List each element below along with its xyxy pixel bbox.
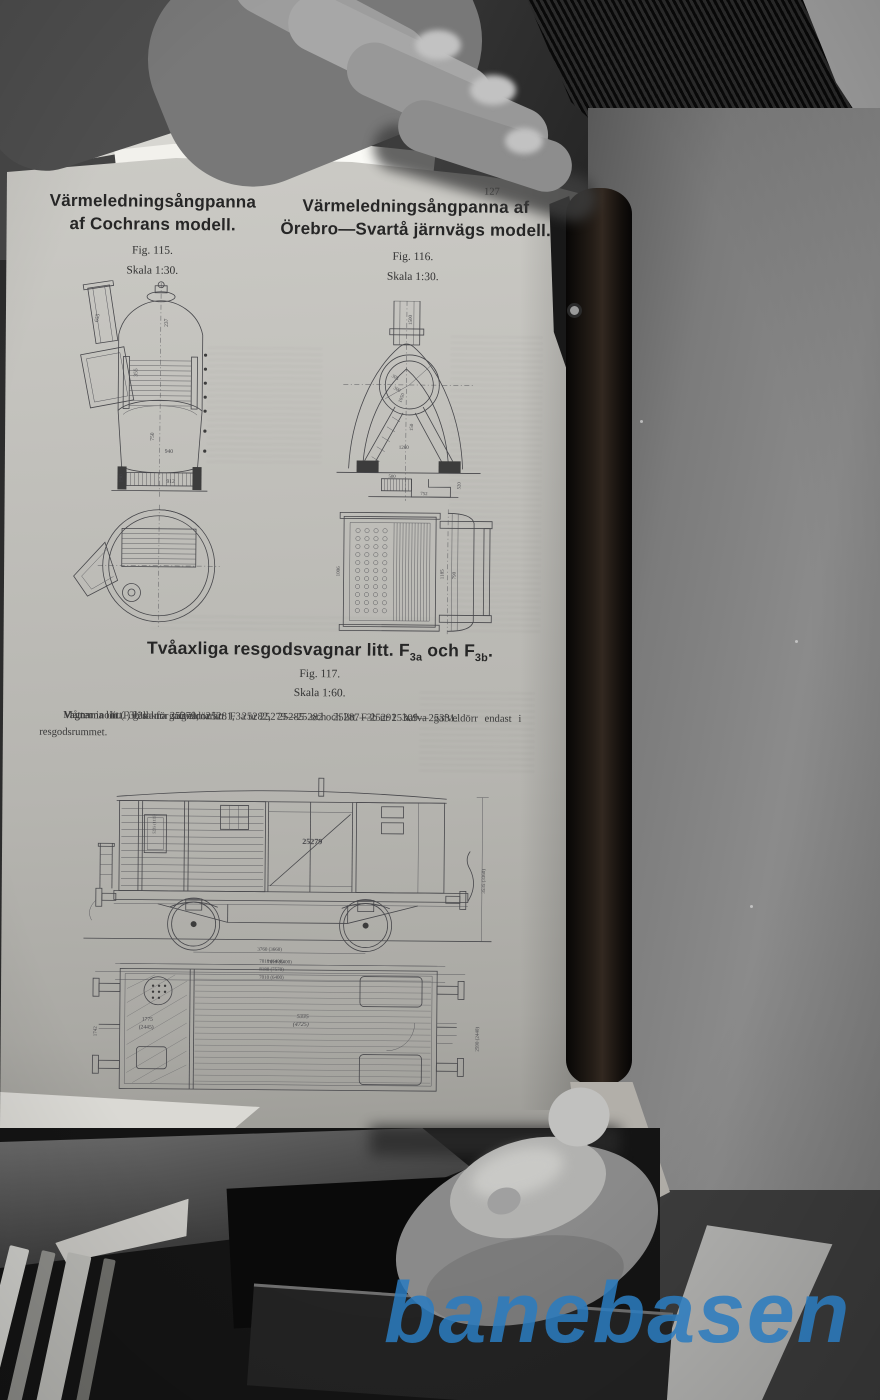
photo-vignette: [0, 0, 880, 1400]
watermark: banebasen: [384, 1266, 864, 1386]
photo-of-book-page: 127 Värmeledningsångpanna af Cochrans mo…: [0, 0, 880, 1400]
